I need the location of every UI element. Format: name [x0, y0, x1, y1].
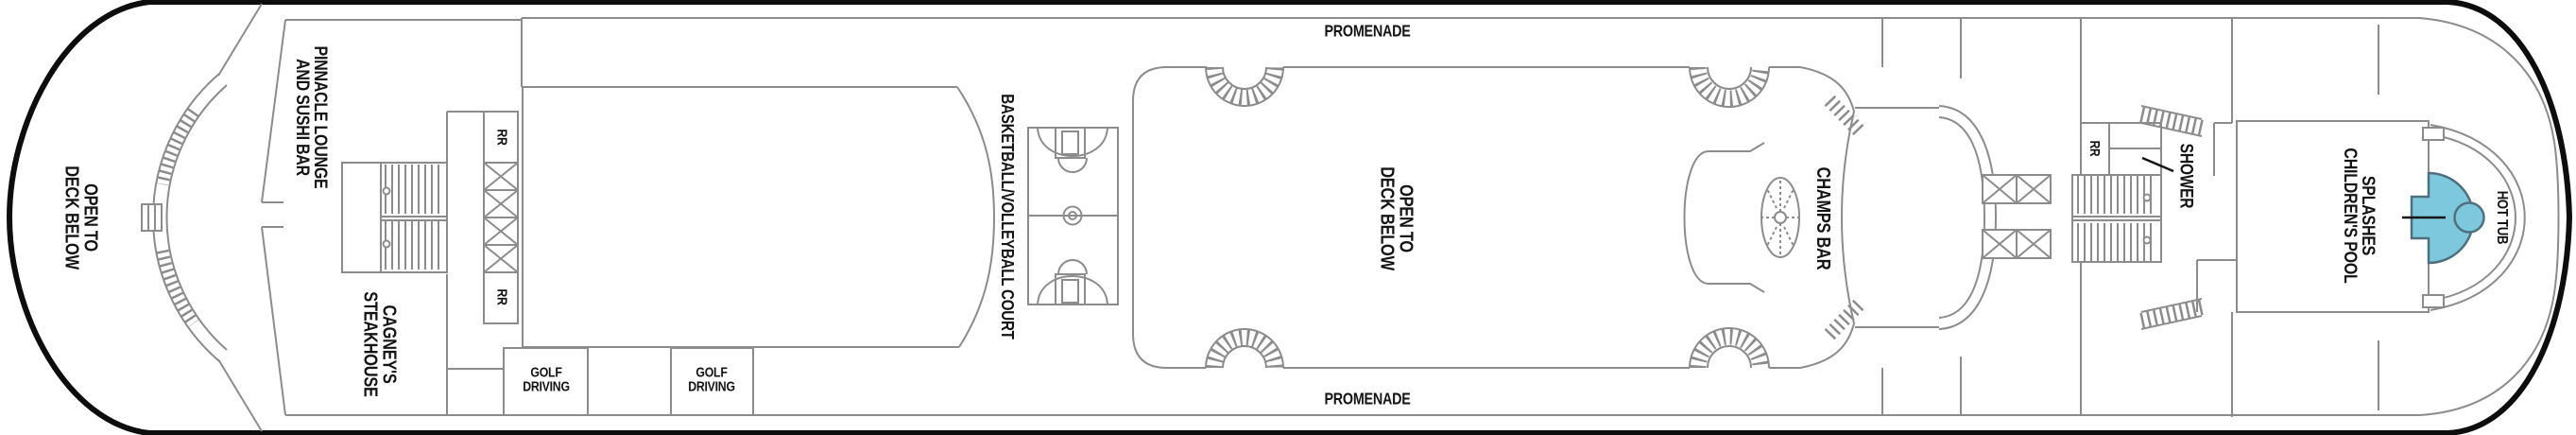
label-cagneys-steakhouse: CAGNEY'S STEAKHOUSE [360, 291, 397, 396]
label-open-to-deck-below-center: OPEN TO DECK BELOW [1377, 166, 1414, 270]
label-basketball-volleyball-court: BASKETBALL/VOLLEYBALL COURT [999, 94, 1016, 339]
label-rr-forward-bottom: RR [494, 288, 508, 304]
label-rr-forward-top: RR [494, 129, 508, 145]
label-hot-tub: HOT TUB [2494, 191, 2509, 245]
bow-landing-icon [142, 204, 162, 231]
deck-plan: OPEN TO DECK BELOW PINNACLE LOUNGE AND S… [0, 0, 2576, 435]
label-golf-driving-1: GOLF DRIVING [523, 366, 570, 393]
pool-room [2237, 121, 2429, 312]
label-rr-midship: RR [2087, 141, 2101, 157]
hot-tub-icon [2455, 203, 2484, 233]
basketball-court-icon [1028, 128, 1118, 304]
label-shower: SHOWER [2176, 144, 2194, 209]
staircase-icon [2072, 175, 2161, 262]
label-golf-driving-2: GOLF DRIVING [688, 366, 735, 393]
label-promenade-top: PROMENADE [1324, 23, 1410, 39]
label-splashes-childrens-pool: SPLASHES CHILDREN'S POOL [2341, 148, 2377, 283]
staircase-icon [342, 163, 447, 272]
label-champs-bar: CHAMPS BAR [1812, 167, 1831, 270]
elevator-icon [484, 163, 518, 272]
label-open-to-deck-below-bow: OPEN TO DECK BELOW [61, 165, 98, 270]
label-pinnacle-lounge: PINNACLE LOUNGE AND SUSHI BAR [293, 46, 329, 189]
label-promenade-bottom: PROMENADE [1324, 391, 1410, 407]
